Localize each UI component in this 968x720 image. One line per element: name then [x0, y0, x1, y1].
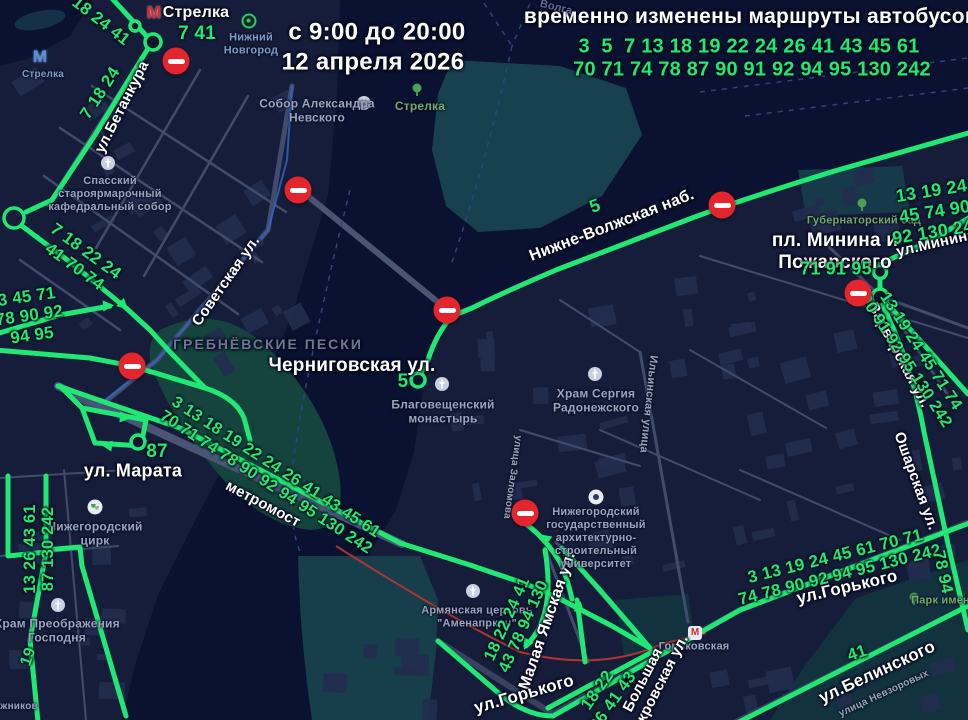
street-label-ozhnikov: ожников — [0, 701, 38, 713]
no-entry-sign — [163, 48, 190, 75]
metro-strelka-top-label: Стрелка — [163, 4, 230, 22]
poi-sergiya: Храм СергияРадонежского — [553, 359, 639, 430]
poi-park-imeni: Парк имени — [911, 595, 968, 608]
city-label: НижнийНовгород — [224, 6, 278, 71]
route-number-5-terminal: 5 — [398, 371, 409, 393]
street-label-marata: ул. Марата — [84, 461, 182, 482]
poi-strelka-park: Стрелка — [395, 99, 445, 113]
no-entry-sign — [119, 353, 146, 380]
poi-preobrazheniya: Храм ПреображенияГосподня — [0, 589, 120, 660]
route-numbers-minin-square: 71 91 95 — [800, 259, 872, 280]
poi-sobor-nevskogo: Собор АлександраНевского — [259, 69, 375, 140]
no-entry-sign — [845, 280, 872, 307]
route-numbers-bottom-left: 13 26 43 6187 130 242 — [0, 504, 77, 593]
changed-routes-line2: 70 71 74 78 87 90 91 92 94 95 130 242 — [573, 59, 931, 82]
poi-university: Нижегородскийгосударственныйархитектурно… — [546, 480, 645, 584]
poi-grebnevskie-peski: ГРЕБНЁВСКИЕ ПЕСКИ — [173, 337, 363, 353]
changed-routes-line1: 3 5 7 13 18 19 22 24 26 41 43 45 61 — [578, 36, 919, 59]
metro-m-icon-strelka-station: М — [33, 47, 47, 67]
tree-icon-strelka-park — [411, 83, 424, 97]
schedule-time: с 9:00 до 20:00 — [288, 18, 465, 45]
route-number-87: 87 — [146, 441, 168, 463]
no-entry-sign — [285, 177, 312, 204]
page-title: временно изменены маршруты автобусов — [524, 5, 968, 29]
metro-strelka-station-label: Стрелка — [22, 69, 64, 81]
no-entry-sign — [434, 297, 461, 324]
metro-m-icon-strelka-top: М — [147, 3, 161, 23]
map-canvas[interactable]: с 9:00 до 20:00 12 апреля 2026 временно … — [0, 0, 968, 720]
no-entry-sign — [512, 500, 539, 527]
no-entry-sign — [709, 192, 736, 219]
tree-icon-gubernatorsky — [856, 198, 869, 212]
route-numbers-strelka-m: 7 41 — [178, 23, 216, 45]
